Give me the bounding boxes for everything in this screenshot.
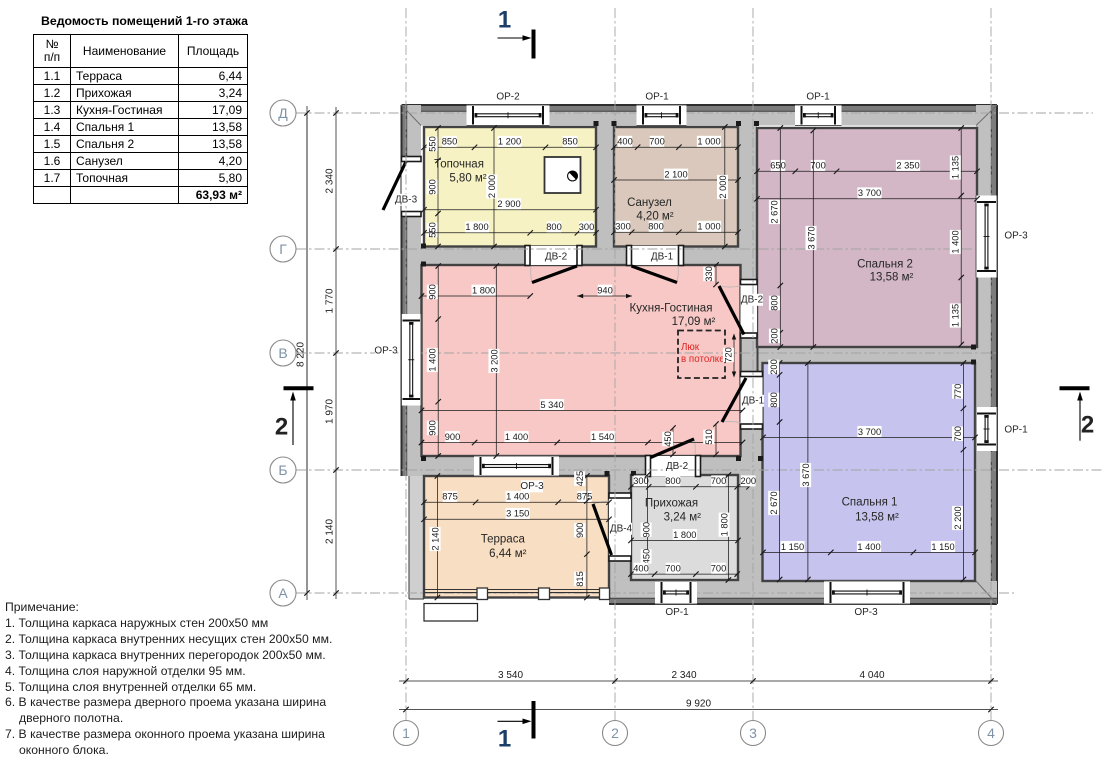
svg-text:450: 450 [641,549,651,565]
svg-text:4: 4 [987,725,995,741]
svg-text:Топочная: Топочная [434,159,484,171]
svg-text:2 900: 2 900 [497,199,520,209]
svg-text:3 200: 3 200 [489,349,499,372]
svg-text:Прихожая: Прихожая [645,497,698,509]
svg-text:940: 940 [597,285,613,295]
svg-text:2 140: 2 140 [430,527,440,550]
svg-text:2 140: 2 140 [325,519,336,544]
svg-text:ДВ-2: ДВ-2 [545,252,568,263]
svg-text:400: 400 [617,137,633,147]
svg-text:2 340: 2 340 [325,168,336,193]
svg-text:5,80 м²: 5,80 м² [449,173,486,185]
svg-text:13,58 м²: 13,58 м² [870,272,914,284]
svg-text:1 400: 1 400 [951,230,961,253]
svg-text:5 340: 5 340 [540,400,563,410]
svg-text:4,20 м²: 4,20 м² [636,211,673,223]
svg-text:400: 400 [633,564,649,574]
svg-text:650: 650 [770,161,786,171]
svg-text:900: 900 [428,420,438,436]
svg-text:1 400: 1 400 [506,492,529,502]
svg-text:900: 900 [641,522,651,538]
svg-text:8 220: 8 220 [296,342,307,367]
svg-text:700: 700 [953,426,963,442]
svg-text:2 100: 2 100 [664,169,687,179]
svg-text:2 000: 2 000 [718,175,728,198]
svg-text:900: 900 [445,432,461,442]
svg-text:Г: Г [279,241,287,257]
svg-text:3: 3 [749,725,757,741]
svg-text:2 350: 2 350 [896,161,919,171]
svg-text:200: 200 [741,476,757,486]
svg-text:2: 2 [1081,412,1094,439]
svg-text:875: 875 [442,492,458,502]
svg-text:3 700: 3 700 [858,188,881,198]
svg-text:В: В [278,345,287,361]
svg-text:425: 425 [575,471,585,487]
svg-text:200: 200 [770,328,780,344]
svg-text:2 200: 2 200 [953,506,963,529]
svg-text:1: 1 [402,725,410,741]
svg-text:2: 2 [275,414,288,441]
svg-text:1 800: 1 800 [472,285,495,295]
svg-text:Спальня 2: Спальня 2 [857,259,913,271]
svg-text:3 670: 3 670 [801,463,811,486]
svg-text:ОР-3: ОР-3 [520,481,544,492]
svg-text:850: 850 [442,137,458,147]
svg-text:ДВ-3: ДВ-3 [395,195,418,206]
svg-text:800: 800 [769,392,779,408]
svg-text:1 000: 1 000 [697,222,720,232]
svg-text:550: 550 [427,222,437,238]
svg-text:875: 875 [577,492,593,502]
svg-text:300: 300 [615,222,631,232]
svg-text:Терраса: Терраса [481,534,526,546]
svg-text:450: 450 [663,431,673,447]
svg-text:1 000: 1 000 [697,137,720,147]
svg-text:1 135: 1 135 [951,304,961,327]
svg-text:1 540: 1 540 [591,432,614,442]
svg-text:ОР-2: ОР-2 [496,92,520,103]
svg-text:3 540: 3 540 [498,670,523,681]
svg-text:в потолке: в потолке [681,354,725,365]
svg-text:2 670: 2 670 [770,200,780,223]
svg-text:4 040: 4 040 [859,670,884,681]
svg-text:770: 770 [953,384,963,400]
svg-text:1 150: 1 150 [781,542,804,552]
svg-text:6,44 м²: 6,44 м² [489,548,526,560]
svg-text:Спальня 1: Спальня 1 [842,497,898,509]
svg-text:ОР-3: ОР-3 [374,346,398,357]
svg-text:3 670: 3 670 [806,226,816,249]
svg-text:ОР-3: ОР-3 [1004,231,1028,242]
svg-text:1 800: 1 800 [719,513,729,536]
svg-text:850: 850 [562,137,578,147]
svg-text:ОР-1: ОР-1 [665,607,689,618]
svg-text:2 670: 2 670 [769,491,779,514]
svg-text:800: 800 [665,476,681,486]
svg-text:300: 300 [579,222,595,232]
svg-text:700: 700 [711,476,727,486]
svg-text:3 700: 3 700 [858,427,881,437]
svg-text:2 340: 2 340 [671,670,696,681]
svg-text:Санузел: Санузел [627,197,672,209]
svg-text:ОР-1: ОР-1 [645,92,669,103]
svg-text:А: А [278,585,288,601]
svg-text:330: 330 [704,266,714,282]
svg-text:Кухня-Гостиная: Кухня-Гостиная [630,303,713,315]
svg-text:1 150: 1 150 [931,542,954,552]
svg-text:Б: Б [278,462,287,478]
svg-text:ДВ-1: ДВ-1 [651,252,674,263]
svg-text:ДВ-4: ДВ-4 [610,524,633,535]
svg-text:1 400: 1 400 [857,542,880,552]
svg-text:ОР-3: ОР-3 [854,607,878,618]
svg-text:1 135: 1 135 [951,156,961,179]
svg-text:9 920: 9 920 [686,698,711,709]
svg-text:1 800: 1 800 [673,530,696,540]
svg-text:Д: Д [278,105,288,121]
svg-text:900: 900 [427,179,437,195]
svg-text:ДВ-2: ДВ-2 [666,461,689,472]
svg-text:1: 1 [498,7,511,34]
svg-text:3 150: 3 150 [506,509,529,519]
svg-text:550: 550 [427,136,437,152]
svg-text:1 770: 1 770 [325,288,336,313]
svg-text:510: 510 [704,429,714,445]
svg-text:3,24 м²: 3,24 м² [664,512,701,524]
svg-text:720: 720 [724,347,734,363]
svg-text:1 400: 1 400 [505,432,528,442]
svg-text:ОР-1: ОР-1 [806,92,830,103]
svg-text:800: 800 [648,222,664,232]
svg-text:ДВ-1: ДВ-1 [742,396,765,407]
svg-text:2: 2 [611,725,619,741]
svg-text:17,09 м²: 17,09 м² [672,316,716,328]
svg-text:700: 700 [711,564,727,574]
svg-text:13,58 м²: 13,58 м² [855,512,899,524]
svg-text:700: 700 [665,564,681,574]
svg-text:900: 900 [575,523,585,539]
svg-text:800: 800 [770,295,780,311]
svg-text:1 200: 1 200 [498,137,521,147]
svg-text:700: 700 [810,161,826,171]
svg-text:1 400: 1 400 [428,348,438,371]
svg-text:700: 700 [649,137,665,147]
svg-text:Люк: Люк [681,342,700,353]
svg-text:200: 200 [769,359,779,375]
svg-text:300: 300 [633,476,649,486]
svg-text:1: 1 [498,726,511,753]
svg-text:ОР-1: ОР-1 [1004,425,1028,436]
svg-text:800: 800 [546,222,562,232]
svg-text:ДВ-2: ДВ-2 [741,295,764,306]
svg-text:1 970: 1 970 [325,399,336,424]
svg-text:1 800: 1 800 [465,222,488,232]
svg-text:900: 900 [428,284,438,300]
svg-text:2 000: 2 000 [487,175,497,198]
svg-text:815: 815 [575,571,585,587]
